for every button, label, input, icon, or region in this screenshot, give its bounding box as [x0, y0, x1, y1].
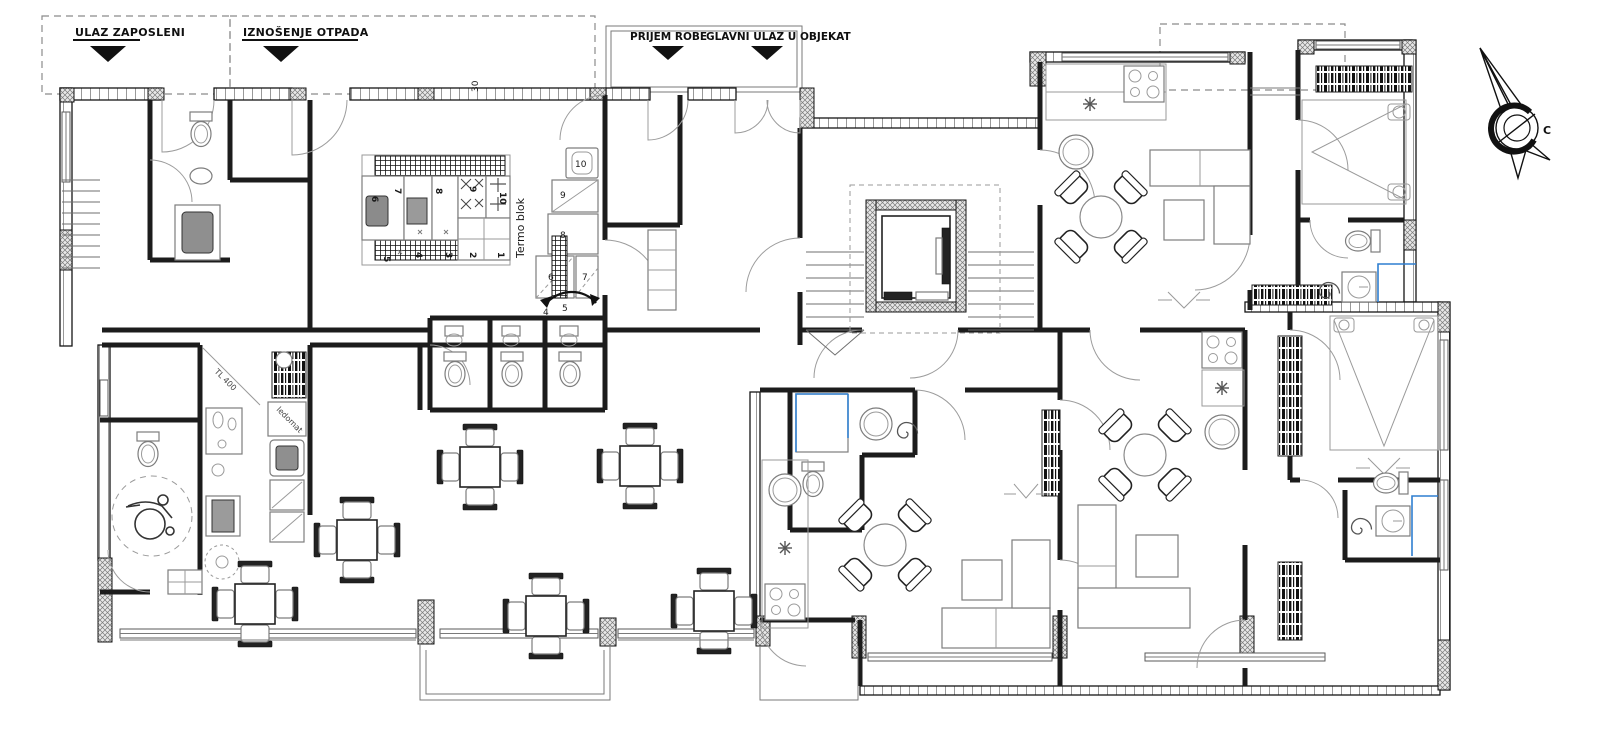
serving-num: 7	[582, 273, 588, 283]
shower-plumbing	[1412, 496, 1438, 556]
coffee-table	[1164, 200, 1204, 240]
label-goods-reception: PRIJEM ROBE	[630, 31, 707, 43]
kitchen-num: 9	[467, 186, 477, 192]
staff-wc	[175, 112, 220, 260]
apartment-bottom-right	[1078, 316, 1438, 640]
kitchen-num: 8	[433, 188, 443, 194]
serving-num: 8	[560, 231, 566, 241]
sink-icon	[1215, 381, 1229, 395]
double-bed	[1302, 100, 1410, 204]
bathroom-middle	[796, 394, 918, 497]
label-termo-blok: Termo blok	[514, 197, 527, 259]
sofa	[1078, 505, 1190, 628]
apartment-bottom-middle	[762, 394, 1060, 648]
dining-table	[437, 424, 523, 510]
toilet	[1374, 472, 1409, 494]
sofa	[1150, 150, 1250, 244]
shower-tray	[182, 212, 213, 253]
kitchen-num: 1	[495, 252, 505, 258]
wheelchair-icon	[126, 495, 174, 539]
canopy-staff-entrance: ULAZ ZAPOSLENI	[42, 16, 230, 94]
stove-icon	[765, 584, 805, 620]
dining-table	[597, 423, 683, 509]
serving-num: 9	[560, 191, 566, 201]
apartment-dining-table	[1098, 408, 1193, 503]
double-bed	[1330, 316, 1438, 450]
serving-num: 6	[548, 273, 554, 283]
coffee-table	[1136, 535, 1178, 577]
public-wc-block	[444, 326, 581, 387]
compass-letter: C	[1543, 124, 1551, 137]
goods-arrow	[652, 46, 684, 60]
turning-circle	[112, 476, 192, 556]
toilet	[802, 462, 824, 497]
stair-hall	[806, 185, 1034, 355]
kitchen-island: 6 7 8 9 10 5 4 3 2 1 Termo blok 30	[362, 80, 527, 265]
wardrobe	[1316, 66, 1412, 92]
washer	[1059, 135, 1093, 169]
sink-icon	[778, 541, 792, 555]
kitchen-num: 6	[369, 196, 379, 202]
serving-num: 4	[543, 308, 549, 318]
kitchen-num: 7	[392, 188, 402, 194]
tv-mark	[1158, 292, 1210, 308]
stair-flight-left	[806, 252, 864, 355]
stair-flight-right	[968, 252, 1034, 330]
kitchen-stove	[458, 176, 486, 218]
floorplan-svg: ULAZ ZAPOSLENI IZNOŠENJE OTPADA PRIJEM R…	[0, 0, 1600, 736]
wardrobe	[1278, 336, 1302, 456]
label-staff-entrance: ULAZ ZAPOSLENI	[75, 26, 185, 39]
elevator	[866, 200, 966, 312]
compass-rose: C	[1480, 48, 1551, 178]
toilet	[1346, 230, 1381, 252]
label-waste-removal: IZNOŠENJE OTPADA	[243, 26, 369, 39]
bedroom-top-right	[1252, 66, 1416, 305]
kitchen-middle	[762, 460, 808, 628]
apartment-dining-table	[1054, 170, 1149, 265]
bath-sink	[1376, 506, 1410, 536]
washer-spiral	[1352, 519, 1372, 535]
kitchen-num: 2	[467, 252, 477, 258]
bathroom-bottom-right	[1352, 472, 1439, 556]
stove-icon	[1202, 332, 1242, 368]
dining-table	[314, 497, 400, 583]
canopy-main-entrance: PRIJEM ROBE GLAVNI ULAZ U OBJEKAT	[606, 26, 851, 92]
kitchen-num: 10	[497, 192, 507, 205]
sink-icon	[1083, 97, 1097, 111]
serving-num: 10	[575, 160, 587, 170]
serving-num: 5	[562, 304, 568, 314]
bathroom-top-right	[1320, 230, 1417, 302]
kitchen-num: 4	[413, 252, 423, 258]
dining-table	[503, 573, 589, 659]
canopy-waste: IZNOŠENJE OTPADA	[230, 16, 595, 94]
label-main-entrance: GLAVNI ULAZ U OBJEKAT	[706, 31, 851, 43]
bar-prep-room: TL 400 ledomat	[203, 348, 306, 579]
accessible-wc	[112, 432, 202, 594]
wardrobe	[1042, 410, 1060, 496]
wardrobe	[1278, 562, 1302, 640]
kitchen-num: 5	[381, 256, 391, 262]
serving-counter: 4 5 10 9 8 6 7	[536, 148, 600, 318]
dining-table	[671, 568, 757, 654]
staff-entrance-arrow	[90, 46, 126, 62]
sofa	[942, 540, 1050, 648]
coffee-table	[962, 560, 1002, 600]
kitchen-counter-top	[375, 156, 505, 176]
dimension-30: 30	[471, 80, 481, 92]
lobby-closet	[648, 230, 676, 310]
main-entrance-arrow	[751, 46, 783, 60]
floorplan-page: ULAZ ZAPOSLENI IZNOŠENJE OTPADA PRIJEM R…	[0, 0, 1600, 736]
tv-mark	[1004, 484, 1048, 498]
stove-icon	[1124, 66, 1164, 102]
waste-arrow	[263, 46, 299, 62]
kitchen-num: 3	[443, 252, 453, 258]
apartment-top-right	[1046, 64, 1250, 308]
bath-sink	[1342, 272, 1376, 302]
apartment-dining-table	[838, 498, 933, 593]
